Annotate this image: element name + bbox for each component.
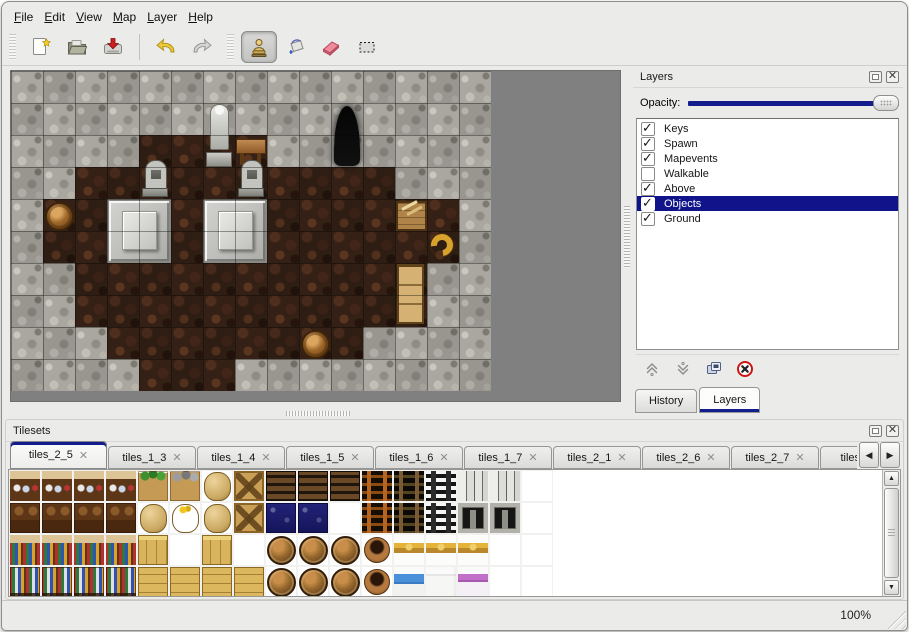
map-object-tombstone <box>139 167 171 199</box>
map-tile-stone-wall[interactable] <box>267 103 299 135</box>
map-tile-dirt-floor[interactable] <box>299 199 331 231</box>
map-tile-stone-wall[interactable] <box>235 359 267 391</box>
tileset-area: ▲ ▼ <box>8 469 901 597</box>
menu-layer[interactable]: Layer <box>147 10 177 24</box>
layer-visibility-checkbox[interactable] <box>641 137 655 151</box>
map-tile-dirt-floor[interactable] <box>267 231 299 263</box>
map-tile-dirt-floor[interactable] <box>267 167 299 199</box>
tile-bed-white[interactable] <box>425 566 457 597</box>
map-tile-dirt-floor[interactable] <box>267 263 299 295</box>
tile-bookshelf-bottom[interactable] <box>105 566 137 597</box>
open-button[interactable] <box>59 31 95 63</box>
layer-buttons <box>636 354 899 385</box>
map-tile-stone-wall[interactable] <box>43 167 75 199</box>
map-tile-stone-wall[interactable] <box>171 71 203 103</box>
move-layer-down-button[interactable] <box>673 360 693 380</box>
tile-clay-pot[interactable] <box>361 566 393 597</box>
map-tile-dirt-floor[interactable] <box>331 199 363 231</box>
map-tile-dirt-floor[interactable] <box>331 295 363 327</box>
tile-arch-pillars[interactable] <box>457 470 489 502</box>
map-tile-stone-wall[interactable] <box>459 167 491 199</box>
tile-bookshelf-top[interactable] <box>73 534 105 566</box>
map-tile-stone-wall[interactable] <box>427 295 459 327</box>
map-tile-dirt-floor[interactable] <box>203 295 235 327</box>
tile-bed-blue[interactable] <box>393 566 425 597</box>
map-tile-stone-wall[interactable] <box>267 135 299 167</box>
tab-close-icon[interactable]: ✕ <box>172 451 181 464</box>
tile-yellow-crate-long[interactable] <box>169 566 201 597</box>
tile-barrel[interactable] <box>297 534 329 566</box>
map-tile-stone-wall[interactable] <box>299 135 331 167</box>
tile-bed-headboard[interactable] <box>393 534 425 566</box>
map-tile-dirt-floor[interactable] <box>331 167 363 199</box>
redo-button[interactable] <box>184 31 220 63</box>
tile-barrel[interactable] <box>297 566 329 597</box>
map-tile-stone-wall[interactable] <box>459 263 491 295</box>
map-tile-stone-wall[interactable] <box>459 199 491 231</box>
opacity-slider-handle[interactable] <box>873 95 899 111</box>
scroll-tabs-right-button[interactable]: ▶ <box>880 442 900 468</box>
map-tile-stone-wall[interactable] <box>363 359 395 391</box>
map-tile-dirt-floor[interactable] <box>363 199 395 231</box>
toolbar-drag-handle[interactable] <box>227 34 234 60</box>
tile-sack[interactable] <box>137 502 169 534</box>
map-tile-dirt-floor[interactable] <box>171 135 203 167</box>
map-tile-dirt-floor[interactable] <box>203 167 235 199</box>
tab-close-icon[interactable]: ✕ <box>617 451 626 464</box>
map-tile-stone-wall[interactable] <box>395 71 427 103</box>
tile-cupboard-bottom[interactable] <box>73 502 105 534</box>
map-tile-stone-wall[interactable] <box>395 135 427 167</box>
map-tile-dirt-floor[interactable] <box>299 263 331 295</box>
tile-stone-doorway[interactable] <box>457 502 489 534</box>
map-tile-stone-wall[interactable] <box>299 359 331 391</box>
map-tile-stone-wall[interactable] <box>267 359 299 391</box>
map-tile-stone-wall[interactable] <box>395 103 427 135</box>
map-tile-dirt-floor[interactable] <box>427 199 459 231</box>
paint-bucket-icon <box>283 35 307 59</box>
map-tile-dirt-floor[interactable] <box>235 327 267 359</box>
tile-ladder-black[interactable] <box>425 502 457 534</box>
tile-cupboard-bottom[interactable] <box>41 502 73 534</box>
tileset-scrollbar[interactable]: ▲ ▼ <box>882 470 900 596</box>
map-tile-stone-wall[interactable] <box>11 231 43 263</box>
duplicate-icon <box>705 360 723 381</box>
tileset-tab-tiles_2_7[interactable]: tiles_2_7✕ <box>731 446 819 469</box>
menu-view[interactable]: View <box>76 10 102 24</box>
map-tile-stone-wall[interactable] <box>107 359 139 391</box>
map-tile-stone-wall[interactable] <box>43 327 75 359</box>
selection-tool-button[interactable] <box>349 31 385 63</box>
tile-ladder-orange[interactable] <box>361 502 393 534</box>
layer-row-ground[interactable]: Ground <box>637 211 898 226</box>
tile-cupboard-bottom[interactable] <box>105 502 137 534</box>
tile-barrel[interactable] <box>329 566 361 597</box>
map-tile-stone-wall[interactable] <box>427 135 459 167</box>
map-tile-stone-wall[interactable] <box>331 71 363 103</box>
map-tile-stone-wall[interactable] <box>363 103 395 135</box>
map-tile-dirt-floor[interactable] <box>363 167 395 199</box>
tilesets-panel: Tilesets ✕ tiles_2_5✕tiles_1_3✕tiles_1_4… <box>5 419 904 600</box>
save-icon <box>101 35 125 59</box>
tileset-tab-tiles_2_5[interactable]: tiles_2_5✕ <box>10 441 107 469</box>
map-tile-stone-wall[interactable] <box>11 359 43 391</box>
map-tile-stone-wall[interactable] <box>43 359 75 391</box>
delete-layer-button[interactable] <box>735 360 755 380</box>
map-tile-stone-wall[interactable] <box>139 71 171 103</box>
map-tile-dirt-floor[interactable] <box>171 167 203 199</box>
map-tile-dirt-floor[interactable] <box>331 327 363 359</box>
tileset-tabbar: tiles_2_5✕tiles_1_3✕tiles_1_4✕tiles_1_5✕… <box>8 441 901 469</box>
map-tile-stone-wall[interactable] <box>459 135 491 167</box>
layer-visibility-checkbox[interactable] <box>641 212 655 226</box>
stamp-tool-icon <box>247 35 271 59</box>
move-down-icon <box>674 360 692 381</box>
zoom-level: 100% <box>840 608 871 622</box>
tile-stone-doorway[interactable] <box>489 502 521 534</box>
tile-bookshelf-bottom[interactable] <box>41 566 73 597</box>
horizontal-splitter[interactable] <box>2 408 633 418</box>
map-tile-dirt-floor[interactable] <box>107 295 139 327</box>
map-tile-dirt-floor[interactable] <box>267 199 299 231</box>
eraser-icon <box>319 35 343 59</box>
tileset-tab-tiles_1_4[interactable]: tiles_1_4✕ <box>197 446 285 469</box>
move-layer-up-button[interactable] <box>642 360 662 380</box>
layers-panel-titlebar: Layers ✕ <box>633 66 903 88</box>
map-tile-stone-wall[interactable] <box>299 71 331 103</box>
map-tile-stone-wall[interactable] <box>171 103 203 135</box>
tileset-tab-tiles_1_7[interactable]: tiles_1_7✕ <box>464 446 552 469</box>
map-tile-dirt-floor[interactable] <box>363 231 395 263</box>
tile-empty-cell <box>521 502 553 534</box>
tilesets-panel-title: Tilesets <box>13 425 51 437</box>
map-tile-stone-wall[interactable] <box>395 167 427 199</box>
delete-icon <box>736 360 754 381</box>
map-tile-dirt-floor[interactable] <box>171 231 203 263</box>
tileset-tab-scroll: ◀ ▶ <box>859 442 901 469</box>
tile-cupboard-top[interactable] <box>73 470 105 502</box>
tile-ladder-brown[interactable] <box>393 470 425 502</box>
tileset-tab-tiles_1_5[interactable]: tiles_1_5✕ <box>286 446 374 469</box>
layer-row-objects[interactable]: Objects <box>637 196 898 211</box>
map-tile-dirt-floor[interactable] <box>235 263 267 295</box>
duplicate-layer-button[interactable] <box>704 360 724 380</box>
tile-crossed-crate[interactable] <box>233 470 265 502</box>
layer-visibility-checkbox[interactable] <box>641 182 655 196</box>
map-tile-stone-wall[interactable] <box>11 167 43 199</box>
map-tile-stone-wall[interactable] <box>75 327 107 359</box>
map-tile-stone-wall[interactable] <box>427 167 459 199</box>
map-tile-dirt-floor[interactable] <box>75 167 107 199</box>
scroll-down-button[interactable]: ▼ <box>884 580 899 595</box>
map-tile-stone-wall[interactable] <box>427 71 459 103</box>
layer-visibility-checkbox[interactable] <box>641 167 655 181</box>
tile-cupboard-top[interactable] <box>9 470 41 502</box>
map-tile-stone-wall[interactable] <box>395 359 427 391</box>
map-tile-dirt-floor[interactable] <box>267 327 299 359</box>
status-bar: 100% <box>2 600 907 630</box>
map-tile-stone-wall[interactable] <box>75 103 107 135</box>
map-tile-dirt-floor[interactable] <box>171 359 203 391</box>
tab-close-icon[interactable]: ✕ <box>795 451 804 464</box>
map-tile-stone-wall[interactable] <box>107 71 139 103</box>
map-tile-stone-wall[interactable] <box>235 103 267 135</box>
close-panel-icon[interactable]: ✕ <box>886 425 899 437</box>
stamp-tool-button[interactable] <box>241 31 277 63</box>
map-tile-stone-wall[interactable] <box>331 359 363 391</box>
new-button[interactable] <box>23 31 59 63</box>
map-tile-dirt-floor[interactable] <box>267 295 299 327</box>
save-button[interactable] <box>95 31 131 63</box>
map-tile-dirt-floor[interactable] <box>203 263 235 295</box>
toolbar <box>2 28 907 66</box>
layer-label: Walkable <box>664 168 709 180</box>
tile-cupboard-top[interactable] <box>105 470 137 502</box>
tab-history[interactable]: History <box>635 389 697 413</box>
map-tile-stone-wall[interactable] <box>11 199 43 231</box>
tile-plant-crate[interactable] <box>137 470 169 502</box>
menu-map[interactable]: Map <box>113 10 136 24</box>
close-panel-icon[interactable]: ✕ <box>886 71 899 83</box>
tab-layers[interactable]: Layers <box>699 387 760 413</box>
map-tile-stone-wall[interactable] <box>107 103 139 135</box>
tileset-tab-tiles_1_3[interactable]: tiles_1_3✕ <box>108 446 196 469</box>
map-object-tombstone <box>235 167 267 199</box>
map-tile-dirt-floor[interactable] <box>299 167 331 199</box>
map-tile-stone-wall[interactable] <box>459 71 491 103</box>
tileset-tab-tiles_2_6[interactable]: tiles_2_6✕ <box>642 446 730 469</box>
tileset-tab-tiles_2[interactable]: tiles_2✕ <box>820 446 857 469</box>
map-tile-stone-wall[interactable] <box>459 327 491 359</box>
tab-close-icon[interactable]: ✕ <box>79 449 88 462</box>
tile-bed-headboard[interactable] <box>457 534 489 566</box>
tile-bed-purple[interactable] <box>457 566 489 597</box>
map-tile-dirt-floor[interactable] <box>171 295 203 327</box>
map-tile-stone-wall[interactable] <box>139 103 171 135</box>
map-tile-dirt-floor[interactable] <box>75 295 107 327</box>
toolbar-drag-handle[interactable] <box>9 34 16 60</box>
map-tile-stone-wall[interactable] <box>11 295 43 327</box>
map-tile-stone-wall[interactable] <box>11 135 43 167</box>
map-tile-stone-wall[interactable] <box>459 359 491 391</box>
map-tile-stone-wall[interactable] <box>299 103 331 135</box>
map-tile-stone-wall[interactable] <box>43 263 75 295</box>
opacity-label: Opacity: <box>640 97 680 109</box>
map-tile-stone-wall[interactable] <box>203 71 235 103</box>
menu-file[interactable]: File <box>14 10 33 24</box>
map-tile-stone-wall[interactable] <box>395 327 427 359</box>
tile-crossed-crate[interactable] <box>233 502 265 534</box>
map-tile-dirt-floor[interactable] <box>139 327 171 359</box>
map-object-barrel <box>43 199 75 231</box>
map-tile-dirt-floor[interactable] <box>139 295 171 327</box>
undo-button[interactable] <box>148 31 184 63</box>
tileset-grid <box>9 470 553 597</box>
map-tile-dirt-floor[interactable] <box>299 295 331 327</box>
map-tile-stone-wall[interactable] <box>427 263 459 295</box>
eraser-tool-button[interactable] <box>313 31 349 63</box>
tile-barrel[interactable] <box>329 534 361 566</box>
map-tile-stone-wall[interactable] <box>459 231 491 263</box>
tile-navy-crate[interactable] <box>297 502 329 534</box>
map-canvas[interactable] <box>11 71 491 391</box>
map-tile-stone-wall[interactable] <box>459 295 491 327</box>
map-tile-stone-wall[interactable] <box>11 71 43 103</box>
map-tile-dirt-floor[interactable] <box>75 231 107 263</box>
map-tile-stone-wall[interactable] <box>75 71 107 103</box>
map-tile-stone-wall[interactable] <box>11 263 43 295</box>
scrollbar-thumb[interactable] <box>884 488 899 578</box>
layers-panel-title: Layers <box>640 71 673 83</box>
map-object-wooden-cabinet <box>395 263 427 327</box>
map-tile-stone-wall[interactable] <box>235 71 267 103</box>
opacity-slider[interactable] <box>688 95 899 111</box>
tileset-tab-tiles_1_6[interactable]: tiles_1_6✕ <box>375 446 463 469</box>
tile-bookshelf-top[interactable] <box>41 534 73 566</box>
tile-cupboard-top[interactable] <box>41 470 73 502</box>
tile-bookshelf-bottom[interactable] <box>73 566 105 597</box>
map-object-barrel <box>299 327 331 359</box>
tab-close-icon[interactable]: ✕ <box>528 451 537 464</box>
map-tile-stone-wall[interactable] <box>75 135 107 167</box>
scroll-up-button[interactable]: ▲ <box>884 471 899 486</box>
tile-barrel[interactable] <box>265 566 297 597</box>
menu-help[interactable]: Help <box>188 10 213 24</box>
map-tile-dirt-floor[interactable] <box>139 359 171 391</box>
map-tile-stone-wall[interactable] <box>363 327 395 359</box>
map-tile-dirt-floor[interactable] <box>363 295 395 327</box>
tile-bookshelf-top[interactable] <box>105 534 137 566</box>
map-tile-stone-wall[interactable] <box>459 103 491 135</box>
layer-label: Above <box>664 183 695 195</box>
map-tile-dirt-floor[interactable] <box>107 167 139 199</box>
tile-ladder-orange[interactable] <box>361 470 393 502</box>
tile-sack[interactable] <box>201 502 233 534</box>
map-tile-stone-wall[interactable] <box>43 135 75 167</box>
map-tile-dirt-floor[interactable] <box>75 199 107 231</box>
layer-row-walkable[interactable]: Walkable <box>637 166 898 181</box>
fill-tool-button[interactable] <box>277 31 313 63</box>
map-tile-dirt-floor[interactable] <box>299 231 331 263</box>
tile-ladder-brown[interactable] <box>393 502 425 534</box>
tile-dark-planks[interactable] <box>297 470 329 502</box>
layer-label: Mapevents <box>664 153 718 165</box>
tab-close-icon[interactable]: ✕ <box>261 451 270 464</box>
map-tile-dirt-floor[interactable] <box>107 263 139 295</box>
vertical-splitter[interactable] <box>621 66 633 412</box>
tile-yellow-crate[interactable] <box>137 534 169 566</box>
map-tile-dirt-floor[interactable] <box>171 263 203 295</box>
tile-empty-cell <box>489 534 521 566</box>
tile-bookshelf-bottom[interactable] <box>9 566 41 597</box>
tile-cupboard-bottom[interactable] <box>9 502 41 534</box>
arrow-down-icon: ▼ <box>888 584 895 591</box>
layer-visibility-checkbox[interactable] <box>641 152 655 166</box>
map-tile-stone-wall[interactable] <box>363 71 395 103</box>
map-tile-stone-wall[interactable] <box>75 359 107 391</box>
map-tile-stone-wall[interactable] <box>43 103 75 135</box>
map-tile-dirt-floor[interactable] <box>331 231 363 263</box>
map-tile-dirt-floor[interactable] <box>331 263 363 295</box>
map-object-gold-horn <box>427 231 459 263</box>
map-view[interactable] <box>10 70 621 402</box>
tile-dark-planks[interactable] <box>265 470 297 502</box>
tileset-tab-tiles_2_1[interactable]: tiles_2_1✕ <box>553 446 641 469</box>
chevron-left-icon: ◀ <box>866 450 873 461</box>
map-tile-dirt-floor[interactable] <box>235 295 267 327</box>
tile-sack[interactable] <box>201 470 233 502</box>
map-tile-dirt-floor[interactable] <box>43 231 75 263</box>
map-tile-stone-wall[interactable] <box>11 103 43 135</box>
float-panel-icon[interactable] <box>869 425 882 437</box>
tile-navy-crate[interactable] <box>265 502 297 534</box>
layers-panel: Layers ✕ Opacity: KeysSpawnMapeventsWalk… <box>633 66 903 414</box>
float-panel-icon[interactable] <box>869 71 882 83</box>
map-tile-dirt-floor[interactable] <box>107 327 139 359</box>
layer-row-keys[interactable]: Keys <box>637 121 898 136</box>
map-tile-dirt-floor[interactable] <box>203 327 235 359</box>
tile-yellow-crate-long[interactable] <box>233 566 265 597</box>
tile-dark-planks[interactable] <box>329 470 361 502</box>
tile-empty-cell <box>521 566 553 597</box>
layer-visibility-checkbox[interactable] <box>641 197 655 211</box>
tile-barrel[interactable] <box>265 534 297 566</box>
map-tile-stone-wall[interactable] <box>107 135 139 167</box>
layer-visibility-checkbox[interactable] <box>641 122 655 136</box>
map-tile-stone-wall[interactable] <box>427 359 459 391</box>
map-tile-stone-wall[interactable] <box>427 103 459 135</box>
map-tile-dirt-floor[interactable] <box>75 263 107 295</box>
map-tile-stone-wall[interactable] <box>43 295 75 327</box>
map-tile-stone-wall[interactable] <box>11 327 43 359</box>
layer-row-spawn[interactable]: Spawn <box>637 136 898 151</box>
map-tile-dirt-floor[interactable] <box>203 359 235 391</box>
tile-yellow-crate-long[interactable] <box>137 566 169 597</box>
map-tile-dirt-floor[interactable] <box>395 231 427 263</box>
tile-stone-crate[interactable] <box>169 470 201 502</box>
map-tile-stone-wall[interactable] <box>363 135 395 167</box>
tile-bed-headboard[interactable] <box>425 534 457 566</box>
map-tile-stone-wall[interactable] <box>267 71 299 103</box>
layer-row-above[interactable]: Above <box>637 181 898 196</box>
map-tile-dirt-floor[interactable] <box>171 327 203 359</box>
tab-close-icon[interactable]: ✕ <box>706 451 715 464</box>
map-tile-stone-wall[interactable] <box>43 71 75 103</box>
selection-marquee-icon <box>355 35 379 59</box>
map-tile-stone-wall[interactable] <box>427 327 459 359</box>
tile-bookshelf-top[interactable] <box>9 534 41 566</box>
resize-grip[interactable] <box>884 607 906 629</box>
toolbar-separator <box>139 34 140 60</box>
tile-arch-pillars[interactable] <box>489 470 521 502</box>
tab-close-icon[interactable]: ✕ <box>439 451 448 464</box>
tile-ladder-black[interactable] <box>425 470 457 502</box>
layer-row-mapevents[interactable]: Mapevents <box>637 151 898 166</box>
tile-open-sack[interactable] <box>169 502 201 534</box>
scroll-tabs-left-button[interactable]: ◀ <box>859 442 879 468</box>
undo-arrow-icon <box>154 35 178 59</box>
map-tile-dirt-floor[interactable] <box>171 199 203 231</box>
map-tile-dirt-floor[interactable] <box>139 263 171 295</box>
map-tile-dirt-floor[interactable] <box>363 263 395 295</box>
tile-clay-pot[interactable] <box>361 534 393 566</box>
map-object-crate-shelf <box>395 199 427 231</box>
tab-close-icon[interactable]: ✕ <box>350 451 359 464</box>
tile-yellow-crate-long[interactable] <box>201 566 233 597</box>
menu-edit[interactable]: Edit <box>44 10 65 24</box>
tile-yellow-crate[interactable] <box>201 534 233 566</box>
tileset-tabs: tiles_2_5✕tiles_1_3✕tiles_1_4✕tiles_1_5✕… <box>10 441 857 469</box>
